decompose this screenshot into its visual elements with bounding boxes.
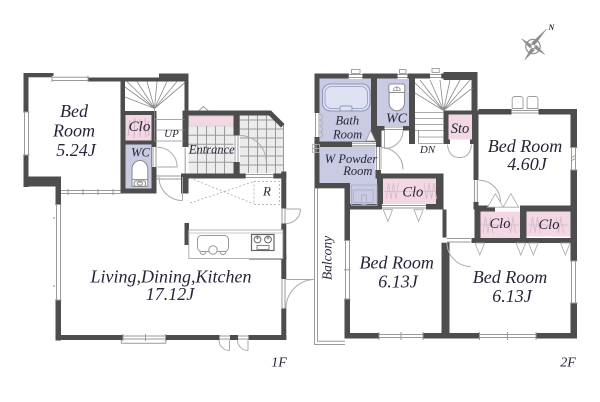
svg-text:6.13J: 6.13J: [492, 286, 533, 306]
svg-text:Room: Room: [342, 164, 372, 178]
svg-text:17.12J: 17.12J: [146, 284, 196, 304]
svg-text:1F: 1F: [271, 356, 287, 371]
svg-text:Room: Room: [52, 121, 95, 141]
svg-text:6.13J: 6.13J: [378, 272, 419, 292]
svg-text:Room: Room: [332, 128, 362, 142]
svg-text:Sto: Sto: [451, 121, 470, 137]
svg-text:Clo: Clo: [490, 216, 511, 232]
svg-text:2F: 2F: [560, 356, 576, 371]
svg-text:WC: WC: [131, 146, 150, 160]
svg-text:Clo: Clo: [539, 217, 560, 233]
svg-text:DN: DN: [419, 144, 436, 156]
svg-text:Bed: Bed: [60, 101, 89, 121]
svg-text:Bed Room: Bed Room: [488, 136, 562, 156]
svg-text:5.24J: 5.24J: [56, 140, 97, 160]
svg-text:R: R: [262, 184, 271, 199]
svg-text:Bath: Bath: [335, 114, 359, 128]
svg-text:UP: UP: [164, 128, 179, 140]
svg-text:Bed Room: Bed Room: [359, 252, 433, 272]
svg-text:Entrance: Entrance: [188, 143, 235, 157]
svg-text:Balcony: Balcony: [320, 236, 335, 280]
svg-text:Clo: Clo: [402, 185, 423, 201]
svg-text:Clo: Clo: [129, 119, 151, 135]
svg-text:Bed Room: Bed Room: [473, 267, 547, 287]
svg-text:4.60J: 4.60J: [507, 154, 548, 174]
svg-text:WC: WC: [386, 112, 408, 127]
